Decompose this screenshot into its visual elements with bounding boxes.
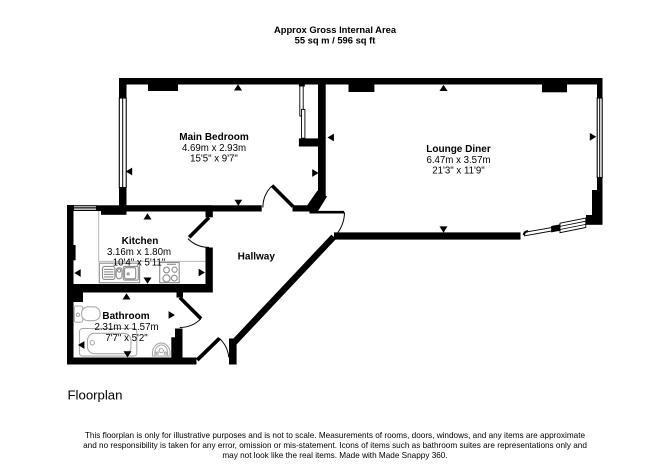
svg-text:Main Bedroom: Main Bedroom: [179, 132, 249, 143]
svg-text:15'5" x 9'7": 15'5" x 9'7": [190, 153, 238, 164]
svg-text:Hallway: Hallway: [238, 252, 276, 263]
svg-text:55 sq m / 596 sq ft: 55 sq m / 596 sq ft: [295, 34, 376, 45]
svg-text:7'7" x 5'2": 7'7" x 5'2": [105, 333, 148, 344]
svg-text:and no responsibility is taken: and no responsibility is taken for any e…: [83, 441, 587, 450]
svg-text:10'4" x 5'11": 10'4" x 5'11": [113, 258, 166, 269]
svg-text:may not look like the real ite: may not look like the real items. Made w…: [222, 451, 447, 460]
svg-text:Kitchen: Kitchen: [122, 236, 159, 247]
svg-text:21'3" x 11'9": 21'3" x 11'9": [432, 165, 485, 176]
svg-text:This floorplan is only for ill: This floorplan is only for illustrative …: [85, 431, 586, 440]
svg-text:Bathroom: Bathroom: [102, 311, 149, 322]
svg-text:2.31m x 1.57m: 2.31m x 1.57m: [94, 322, 158, 333]
svg-text:6.47m x 3.57m: 6.47m x 3.57m: [426, 155, 490, 166]
svg-text:3.16m x 1.80m: 3.16m x 1.80m: [107, 247, 171, 258]
svg-text:Floorplan: Floorplan: [68, 388, 123, 403]
svg-text:Lounge Diner: Lounge Diner: [426, 144, 491, 155]
